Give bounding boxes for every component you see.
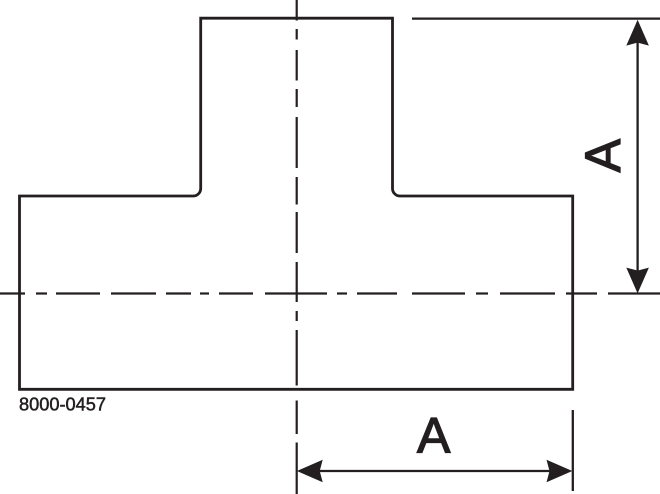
svg-text:A: A [417,408,451,464]
svg-text:8000-0457: 8000-0457 [19,395,106,415]
svg-text:A: A [575,138,631,172]
